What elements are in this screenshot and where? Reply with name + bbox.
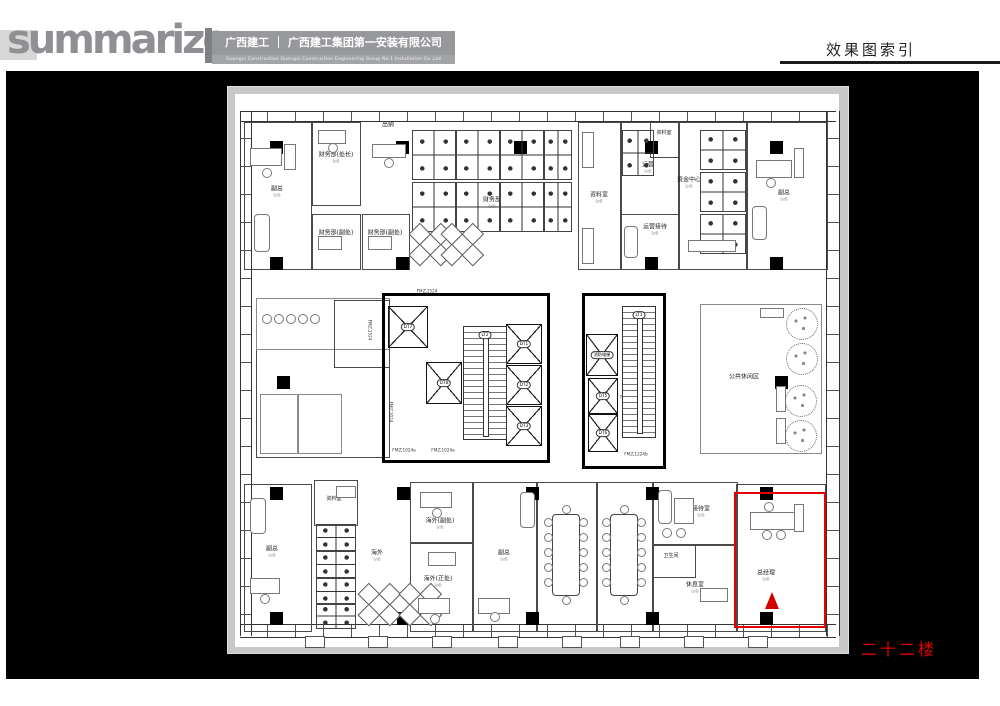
company-name-en: Guangxi Construction Guangxi Constructio…: [212, 55, 455, 64]
title-rule: [780, 61, 1000, 64]
drawing-sheet: [235, 94, 839, 647]
floor-label: 二十二楼: [861, 636, 937, 660]
brand-logo: summarize: [7, 20, 226, 60]
company-name-cn: 广西建工 ｜ 广西建工集团第一安装有限公司: [212, 31, 455, 55]
page-title: 效果图索引: [826, 39, 916, 60]
logo-separator: [205, 28, 212, 63]
